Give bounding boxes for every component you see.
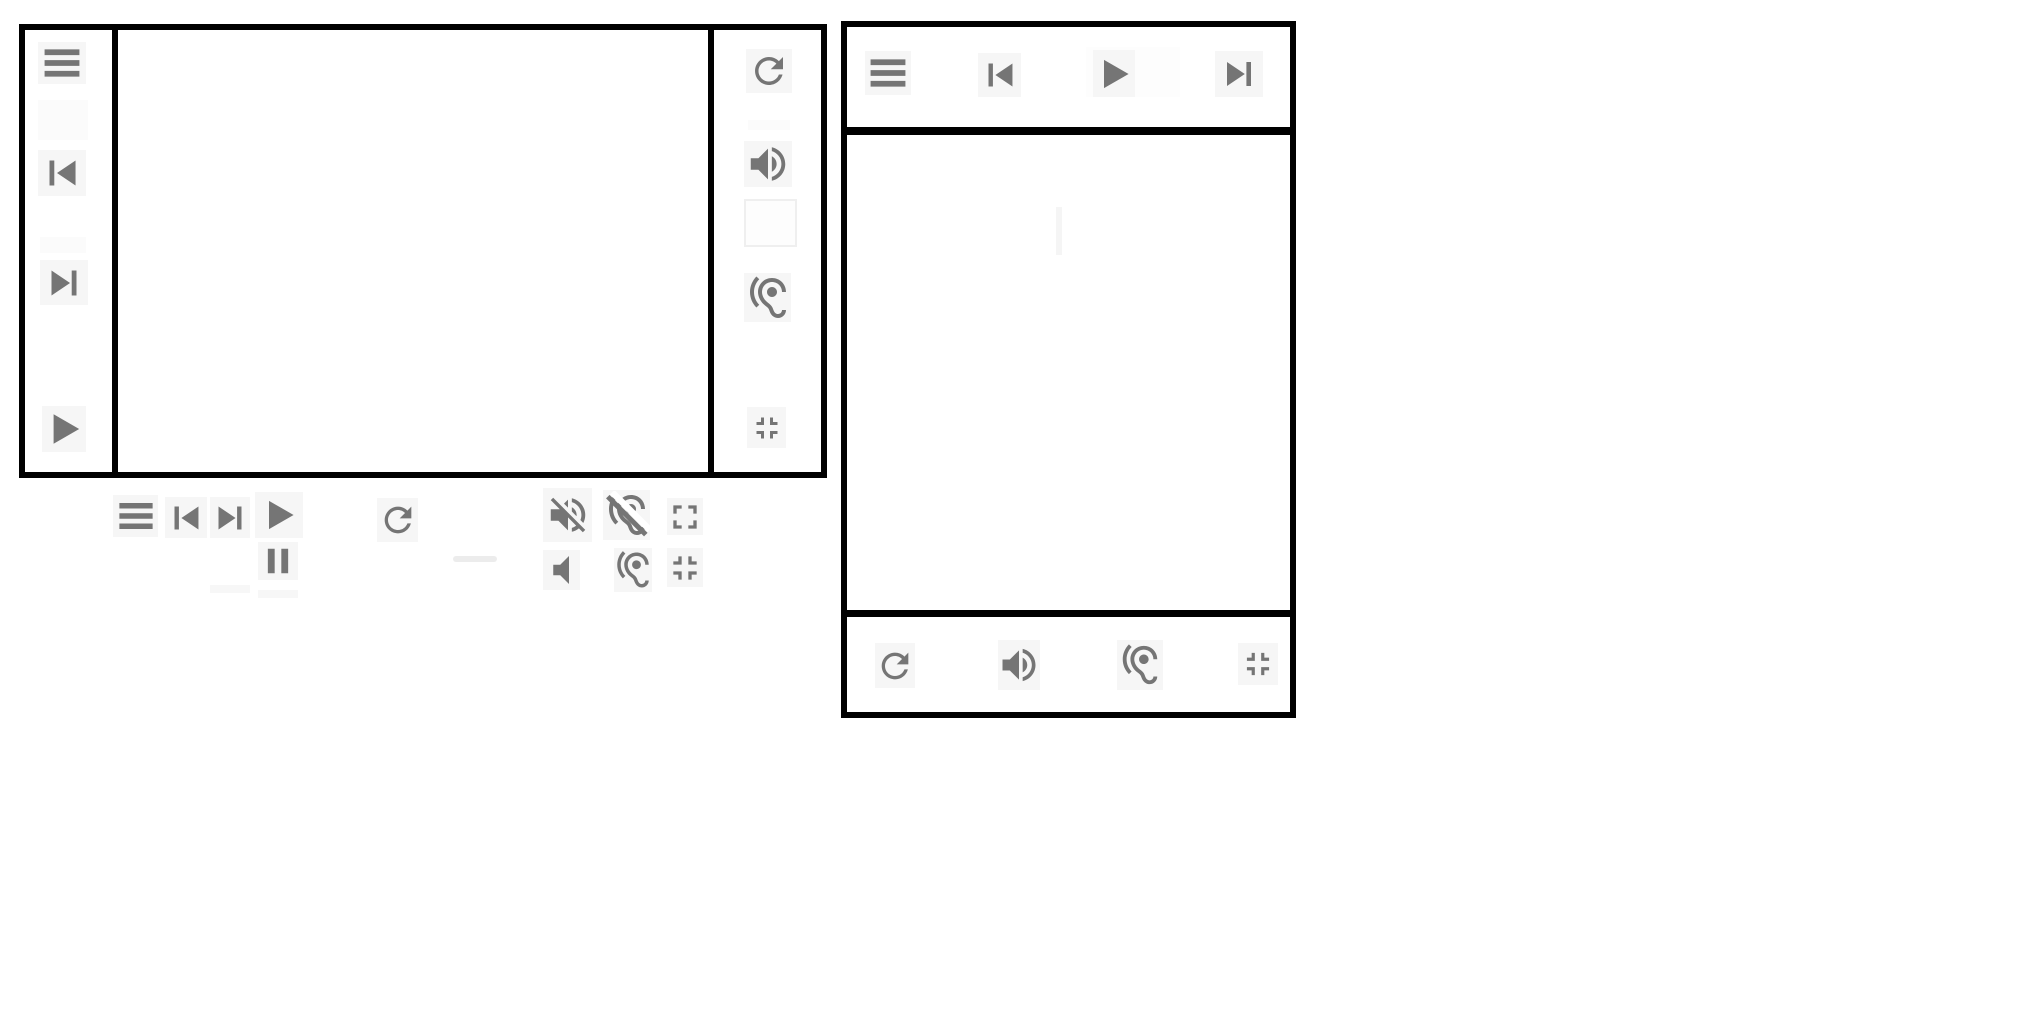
- ui-artifact-tile: [40, 237, 86, 253]
- fullscreen-exit-icon: [665, 548, 705, 588]
- menu-icon: [40, 41, 84, 85]
- ui-artifact-strip: [258, 590, 298, 598]
- hearing-icon: [1117, 642, 1163, 688]
- menu-button[interactable]: [865, 51, 911, 95]
- skip-next-button[interactable]: [210, 497, 250, 538]
- skip-previous-button[interactable]: [38, 150, 86, 196]
- skip-next-icon: [207, 495, 253, 541]
- skip-next-icon: [1215, 50, 1263, 98]
- refresh-button[interactable]: [377, 498, 418, 542]
- play-button[interactable]: [255, 492, 303, 538]
- ui-artifact-line: [1056, 207, 1062, 255]
- play-button[interactable]: [42, 406, 86, 452]
- menu-icon: [866, 51, 910, 95]
- skip-previous-icon: [977, 52, 1023, 98]
- left-toolbar-divider: [112, 28, 118, 474]
- fullscreen-exit-button[interactable]: [667, 548, 703, 587]
- hearing-icon: [744, 274, 792, 322]
- play-icon: [254, 490, 304, 540]
- hearing-button[interactable]: [1117, 640, 1163, 690]
- volume-up-button[interactable]: [998, 640, 1040, 690]
- ui-artifact-strip: [748, 120, 790, 130]
- volume-up-icon: [997, 643, 1041, 687]
- skip-previous-button[interactable]: [978, 53, 1021, 97]
- refresh-icon: [748, 50, 790, 92]
- fullscreen-exit-button[interactable]: [747, 407, 786, 448]
- pause-button[interactable]: [258, 542, 298, 580]
- ui-artifact-strip: [210, 585, 250, 593]
- hearing-disabled-button[interactable]: [603, 490, 650, 540]
- volume-off-icon: [545, 492, 591, 538]
- bottom-toolbar-divider: [845, 610, 1292, 617]
- refresh-button[interactable]: [875, 643, 915, 688]
- top-toolbar-divider: [845, 127, 1292, 135]
- skip-next-icon: [39, 258, 89, 308]
- volume-mute-button[interactable]: [543, 550, 580, 590]
- volume-up-icon: [745, 141, 791, 187]
- fullscreen-exit-icon: [1239, 645, 1277, 683]
- pause-icon: [257, 540, 299, 582]
- fullscreen-icon: [665, 497, 705, 537]
- left-player-panel: [19, 24, 827, 478]
- play-icon: [1089, 49, 1139, 99]
- refresh-button[interactable]: [746, 49, 792, 93]
- hearing-disabled-icon: [603, 491, 651, 539]
- refresh-icon: [378, 500, 418, 540]
- menu-button[interactable]: [38, 42, 86, 84]
- skip-next-button[interactable]: [1215, 51, 1263, 97]
- skip-previous-icon: [163, 495, 209, 541]
- canvas: [0, 0, 2024, 1024]
- menu-icon: [115, 495, 157, 537]
- skip-next-button[interactable]: [40, 260, 88, 305]
- ui-artifact-tile: [38, 100, 88, 140]
- volume-mute-icon: [541, 549, 583, 591]
- play-button[interactable]: [1093, 50, 1135, 97]
- volume-off-button[interactable]: [543, 488, 592, 542]
- fullscreen-button[interactable]: [667, 498, 703, 535]
- skip-previous-icon: [37, 148, 87, 198]
- fullscreen-exit-icon: [749, 410, 785, 446]
- empty-button[interactable]: [744, 199, 797, 247]
- hearing-icon: [612, 549, 654, 591]
- play-icon: [38, 403, 90, 455]
- menu-button[interactable]: [113, 495, 158, 537]
- volume-up-button[interactable]: [744, 141, 792, 187]
- fullscreen-exit-button[interactable]: [1238, 643, 1278, 685]
- skip-previous-button[interactable]: [165, 497, 207, 538]
- hearing-button[interactable]: [614, 548, 652, 592]
- refresh-icon: [875, 646, 915, 686]
- hearing-button[interactable]: [744, 273, 791, 322]
- ui-artifact-dash: [453, 556, 497, 562]
- right-toolbar-divider: [708, 28, 714, 474]
